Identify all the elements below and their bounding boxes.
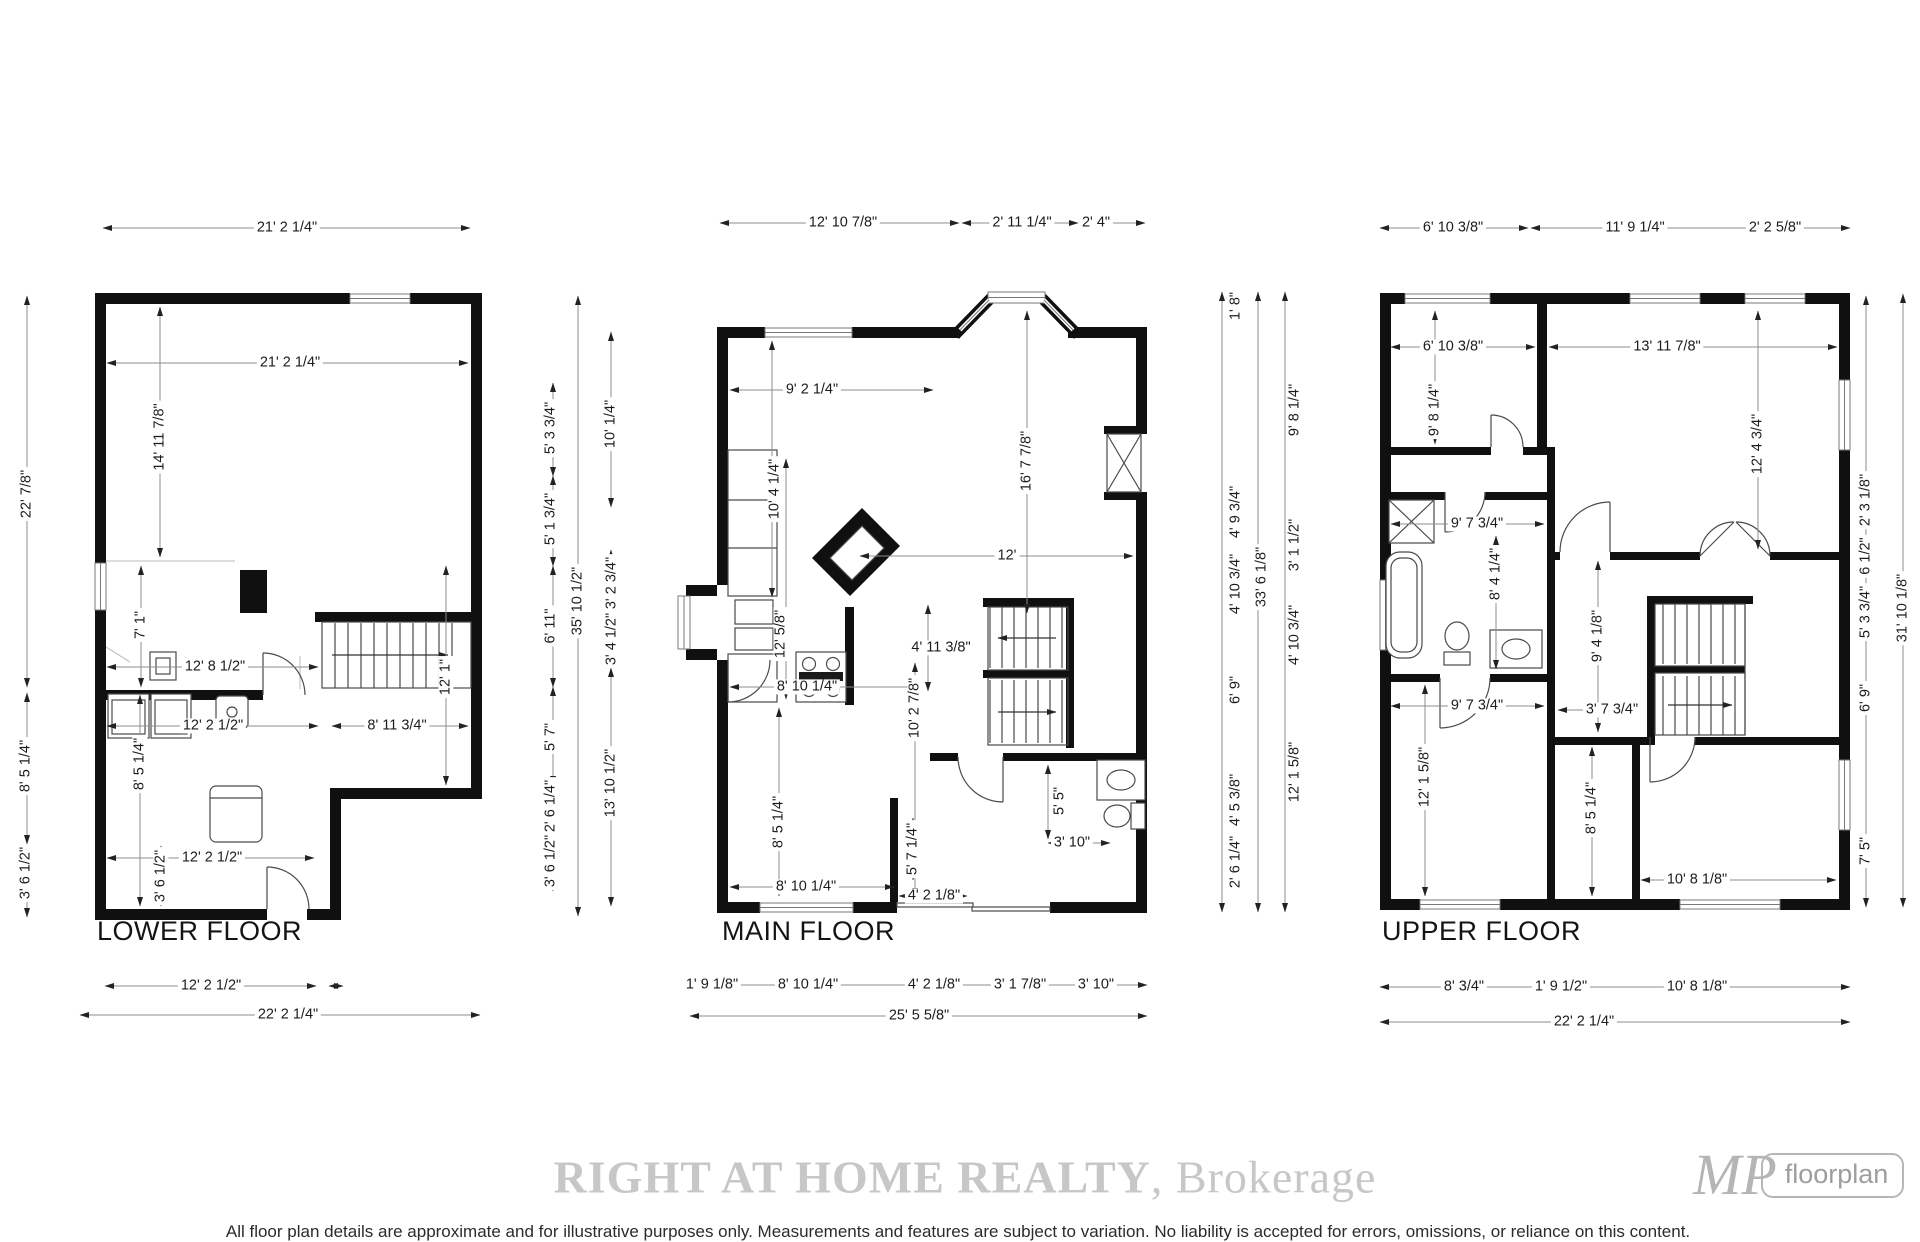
disclaimer-text: All floor plan details are approximate a… [226, 1222, 1690, 1242]
main-floor-bathroom [1097, 760, 1145, 829]
lower-floor-title: LOWER FLOOR [97, 916, 302, 947]
lower-floor-walls [95, 293, 482, 920]
dim-label: 10' 4 1/4" [767, 456, 782, 522]
dim-label: 13' 10 1/2" [603, 746, 618, 820]
dim-label: 22' 7/8" [19, 467, 34, 521]
dim-label: 14' 11 7/8" [152, 400, 167, 473]
dim-label: 10' 1/4" [603, 397, 618, 451]
dim-label: 22' 2 1/4" [1551, 1014, 1617, 1029]
dim-label: 8' 5 1/4" [18, 737, 33, 795]
brokerage-suffix: , Brokerage [1151, 1152, 1377, 1203]
dim-label: 31' 10 1/8" [1895, 571, 1910, 645]
dim-label: 6' 11" [543, 605, 558, 646]
dim-label: 8' 5 1/4" [1584, 779, 1599, 837]
lower-floor-plan [27, 228, 482, 1015]
dim-label: 3' 4 1/2" [604, 610, 619, 668]
dim-label: 12' 2 1/2" [180, 718, 246, 733]
upper-floor-windows [1380, 294, 1850, 909]
dim-label: 2' 2 5/8" [1746, 220, 1804, 235]
upper-floor-title: UPPER FLOOR [1382, 916, 1581, 947]
logo-wordmark: floorplan [1761, 1153, 1905, 1198]
dim-label: 9' 7 3/4" [1448, 516, 1506, 531]
dim-label: 8' 11 3/4" [364, 718, 429, 733]
dim-label: 8' 10 1/4" [775, 977, 841, 992]
dim-label: 22' 2 1/4" [255, 1007, 321, 1022]
upper-floor-walls [1380, 293, 1850, 910]
dim-label: 1' 8" [1228, 289, 1243, 323]
main-floor-kitchen [728, 450, 900, 702]
dim-label: 9' 8 1/4" [1427, 381, 1442, 439]
dim-label: 4' 9 3/4" [1228, 483, 1243, 541]
dim-label: 4' 5 3/8" [1228, 771, 1243, 829]
dim-label: 5' 5" [1052, 784, 1067, 818]
brokerage-name: RIGHT AT HOME REALTY [554, 1152, 1151, 1203]
dim-label: 6' 10 3/8" [1420, 339, 1486, 354]
brokerage-watermark: RIGHT AT HOME REALTY, Brokerage [554, 1151, 1377, 1204]
lower-floor-fixtures [106, 561, 300, 842]
dim-label: 3' 10" [1051, 835, 1093, 850]
dim-label: 5' 7 1/4" [905, 820, 920, 878]
dim-label: 12' [995, 548, 1020, 563]
dim-label: 4' 10 3/4" [1287, 602, 1302, 668]
dim-label: 10' 2 7/8" [907, 675, 922, 741]
dim-label: 12' 5/8" [773, 607, 788, 661]
dim-label: 5' 3 3/4" [543, 399, 558, 457]
dim-label: 12' 4 3/4" [1750, 411, 1765, 477]
dim-label: 3' 1 1/2" [1287, 516, 1302, 574]
dim-label: 21' 2 1/4" [254, 220, 320, 235]
dim-label: 8' 5 1/4" [771, 793, 786, 851]
dim-label: 8' 4 1/4" [1488, 545, 1503, 603]
dim-label: 3' 6 1/2" [153, 847, 168, 905]
dim-label: 12' 2 1/2" [179, 850, 245, 865]
dim-label: 3' 7 3/4" [1583, 702, 1641, 717]
dim-label: 8' 10 1/4" [773, 879, 839, 894]
dim-label: 4' 2 1/8" [905, 977, 963, 992]
dim-label: 9' 8 1/4" [1287, 381, 1302, 439]
lower-floor-doors [263, 653, 309, 909]
dim-label: 12' 1 5/8" [1417, 744, 1432, 810]
dim-label: 5' 1 3/4" [543, 490, 558, 548]
dim-label: 2' 3 1/8" [1858, 471, 1873, 529]
dim-label: 5' 7" [543, 720, 558, 754]
dim-label: 6' 9" [1858, 681, 1873, 715]
dim-label: 2' 4" [1079, 215, 1113, 230]
lower-floor-windows [95, 294, 410, 610]
dim-label: 12' 1" [438, 656, 453, 698]
dim-label: 4' 2 1/8" [905, 888, 963, 903]
dim-label: 2' 6 1/4" [543, 777, 558, 835]
dim-label: 6' 10 3/8" [1420, 220, 1486, 235]
dim-label: 3' 6 1/2" [18, 844, 33, 902]
dim-label: 25' 5 5/8" [886, 1008, 952, 1023]
dim-label: 8' 3/4" [1441, 979, 1487, 994]
dim-label: 8' 5 1/4" [132, 735, 147, 793]
dim-label: 8' 10 1/4" [774, 679, 840, 694]
dim-label: 3' 6 1/2" [543, 832, 558, 890]
dim-label: 4' 10 3/4" [1228, 551, 1243, 617]
dim-label: 33' 6 1/8" [1254, 544, 1269, 610]
dim-label: 12' 8 1/2" [182, 659, 248, 674]
dim-label: 6' 9" [1228, 673, 1243, 707]
dim-label: 1' 9 1/2" [1532, 979, 1590, 994]
dim-label: 3' 2 3/4" [604, 554, 619, 612]
dim-label: 12' 2 1/2" [178, 978, 244, 993]
dim-label: 21' 2 1/4" [257, 355, 323, 370]
dim-label: 6 1/2" [1858, 534, 1873, 577]
dim-label: 7' 1" [133, 608, 148, 642]
dim-label: 9' 4 1/8" [1590, 607, 1605, 665]
dim-label: 1' 9 1/8" [683, 977, 741, 992]
dim-label: 9' 2 1/4" [783, 382, 841, 397]
mp-floorplan-logo: MP floorplan [1693, 1146, 1904, 1204]
dim-label: 2' 6 1/4" [1228, 833, 1243, 891]
dim-label: 3' 1 7/8" [991, 977, 1049, 992]
dim-label: 11' 9 1/4" [1602, 220, 1667, 235]
dim-label: 12' 10 7/8" [806, 215, 880, 230]
dim-label: 10' 8 1/8" [1664, 979, 1730, 994]
main-floor-fireplace [1107, 434, 1141, 492]
dim-label: 7' 5" [1858, 834, 1873, 868]
dim-label: 9' 7 3/4" [1448, 698, 1506, 713]
dim-label: 4' 11 3/8" [908, 640, 973, 655]
dim-label: 12' 1 5/8" [1287, 739, 1302, 805]
floorplan-canvas [0, 0, 1920, 1242]
dim-label: 2' 11 1/4" [989, 215, 1054, 230]
logo-monogram: MP [1693, 1146, 1777, 1204]
dim-label: 35' 10 1/2" [570, 564, 585, 638]
main-floor-title: MAIN FLOOR [722, 916, 895, 947]
dim-label: 10' 8 1/8" [1664, 872, 1730, 887]
dim-label: 13' 11 7/8" [1630, 339, 1703, 354]
dim-label: 5' 3 3/4" [1858, 583, 1873, 641]
dim-label: 16' 7 7/8" [1019, 428, 1034, 494]
dim-label: 3' 10" [1075, 977, 1117, 992]
